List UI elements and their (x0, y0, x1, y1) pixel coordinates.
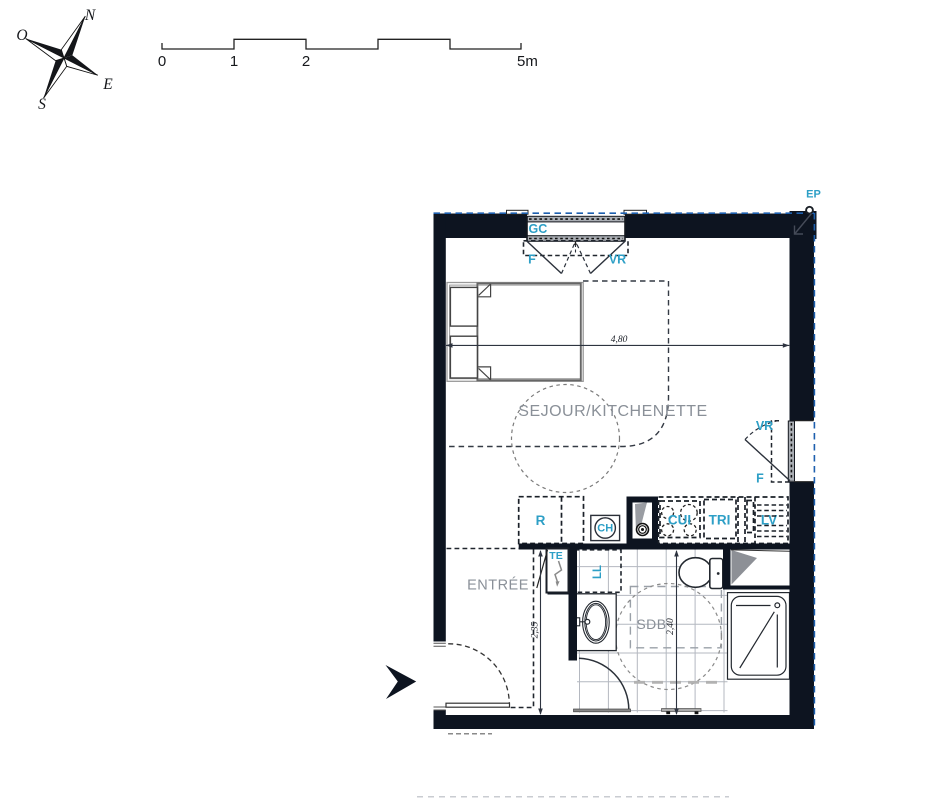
svg-text:SEJOUR/KITCHENETTE: SEJOUR/KITCHENETTE (518, 403, 707, 420)
svg-text:TRI: TRI (709, 513, 731, 528)
svg-text:N: N (84, 7, 97, 24)
svg-text:E: E (102, 76, 113, 93)
svg-text:F: F (756, 472, 764, 486)
svg-text:1: 1 (230, 53, 238, 70)
svg-text:CH: CH (597, 523, 613, 535)
svg-text:O: O (16, 27, 27, 44)
svg-text:S: S (38, 96, 46, 113)
svg-text:EP: EP (806, 189, 821, 201)
svg-text:F: F (528, 253, 536, 267)
svg-text:2,40: 2,40 (666, 618, 676, 635)
svg-text:GC: GC (529, 222, 548, 236)
svg-text:R: R (536, 513, 546, 528)
svg-text:SDB: SDB (636, 616, 666, 632)
svg-text:VR: VR (756, 419, 773, 433)
svg-text:5m: 5m (517, 53, 538, 70)
svg-text:TE: TE (549, 550, 562, 562)
svg-text:LL: LL (592, 565, 604, 579)
svg-text:VR: VR (609, 253, 626, 267)
svg-text:0: 0 (158, 53, 166, 70)
svg-text:ENTRÉE: ENTRÉE (467, 577, 529, 594)
svg-text:2,35: 2,35 (531, 621, 541, 638)
svg-text:CUI: CUI (668, 513, 691, 528)
svg-text:2: 2 (302, 53, 310, 70)
svg-text:4,80: 4,80 (611, 335, 628, 345)
